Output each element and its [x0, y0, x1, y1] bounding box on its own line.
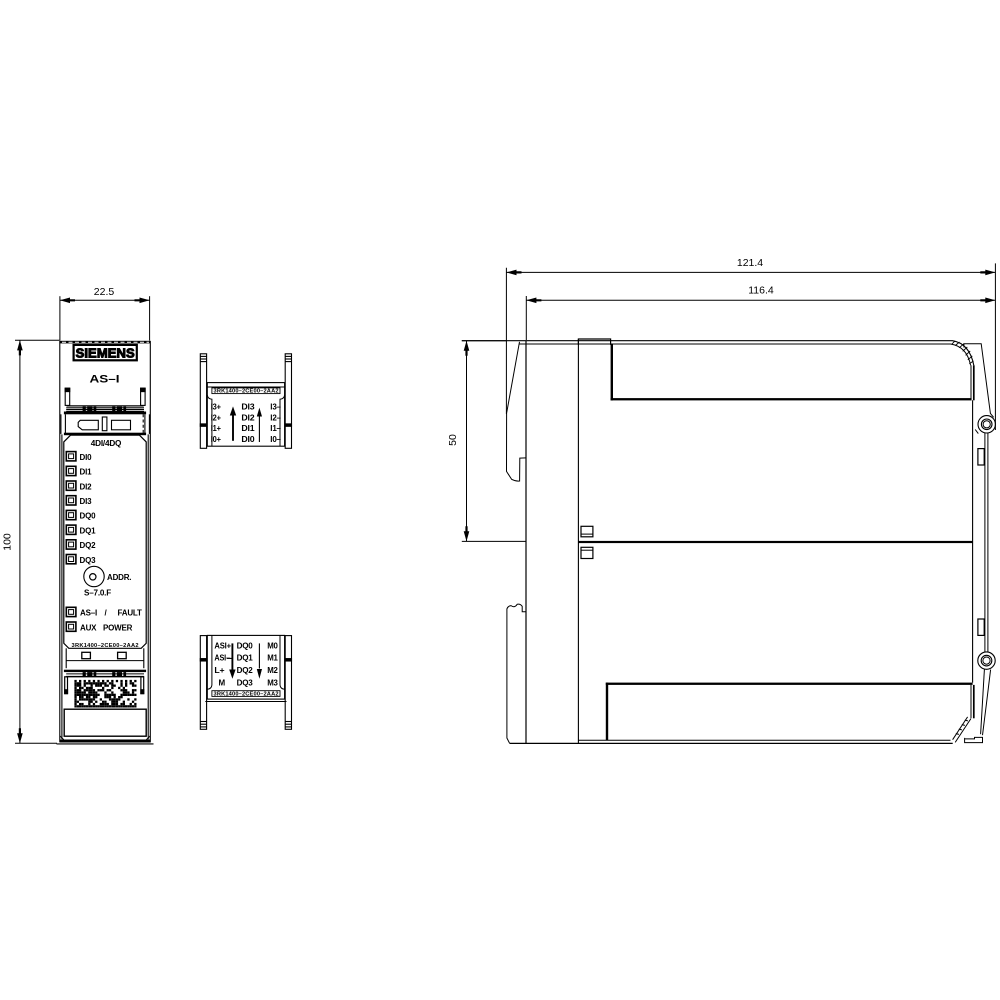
svg-text:I3–: I3–: [270, 403, 281, 412]
svg-text:M2: M2: [267, 666, 278, 675]
svg-text:3RK1400–2CE00–2AA2: 3RK1400–2CE00–2AA2: [214, 692, 279, 698]
svg-text:I2–: I2–: [270, 413, 281, 422]
svg-text:POWER: POWER: [103, 624, 133, 633]
svg-text:M1: M1: [267, 654, 278, 663]
svg-text:S–7.0.F: S–7.0.F: [84, 588, 111, 597]
svg-text:DQ0: DQ0: [237, 641, 254, 650]
svg-text:ADDR.: ADDR.: [107, 573, 131, 582]
svg-text:DI3: DI3: [80, 497, 93, 506]
svg-text:50: 50: [447, 434, 459, 446]
svg-text:I0–: I0–: [270, 435, 281, 444]
svg-text:22.5: 22.5: [94, 286, 115, 298]
svg-text:M: M: [219, 678, 226, 687]
svg-text:DI2: DI2: [80, 482, 93, 491]
svg-text:DQ1: DQ1: [237, 654, 254, 663]
svg-text:SIEMENS: SIEMENS: [76, 345, 135, 360]
svg-text:4DI/4DQ: 4DI/4DQ: [91, 439, 122, 448]
svg-text:DI0: DI0: [241, 435, 255, 444]
svg-text:DI3: DI3: [241, 403, 255, 412]
svg-text:DQ1: DQ1: [80, 526, 97, 535]
svg-text:DQ2: DQ2: [237, 666, 254, 675]
svg-text:AS–I: AS–I: [90, 374, 120, 386]
svg-text:I1–: I1–: [270, 424, 281, 433]
svg-text:121.4: 121.4: [737, 257, 763, 269]
svg-text:I3+: I3+: [211, 403, 221, 412]
svg-text:I1+: I1+: [211, 424, 221, 433]
svg-text:DI1: DI1: [241, 424, 255, 433]
svg-text:3RK1400–2CE00–2AA2: 3RK1400–2CE00–2AA2: [214, 389, 279, 395]
svg-text:DQ3: DQ3: [80, 556, 97, 565]
svg-text:AUX: AUX: [80, 624, 97, 633]
svg-text:116.4: 116.4: [748, 285, 774, 297]
svg-text:M0: M0: [267, 641, 278, 650]
svg-text:FAULT: FAULT: [118, 609, 142, 618]
svg-text:DQ2: DQ2: [80, 541, 97, 550]
svg-text:I0+: I0+: [211, 435, 221, 444]
svg-text:AS–I: AS–I: [80, 609, 97, 618]
svg-text:DI0: DI0: [80, 453, 93, 462]
svg-text:DI2: DI2: [241, 413, 255, 422]
svg-text:DQ0: DQ0: [80, 512, 97, 521]
svg-text:100: 100: [2, 533, 14, 551]
svg-text:I2+: I2+: [211, 413, 221, 422]
svg-text:ASI+: ASI+: [214, 641, 231, 650]
svg-text:M3: M3: [267, 678, 278, 687]
svg-text:3RK1400–2CE00–2AA2: 3RK1400–2CE00–2AA2: [72, 643, 139, 649]
svg-text:L+: L+: [214, 666, 225, 675]
svg-text:DQ3: DQ3: [237, 678, 254, 687]
svg-text:DI1: DI1: [80, 468, 93, 477]
